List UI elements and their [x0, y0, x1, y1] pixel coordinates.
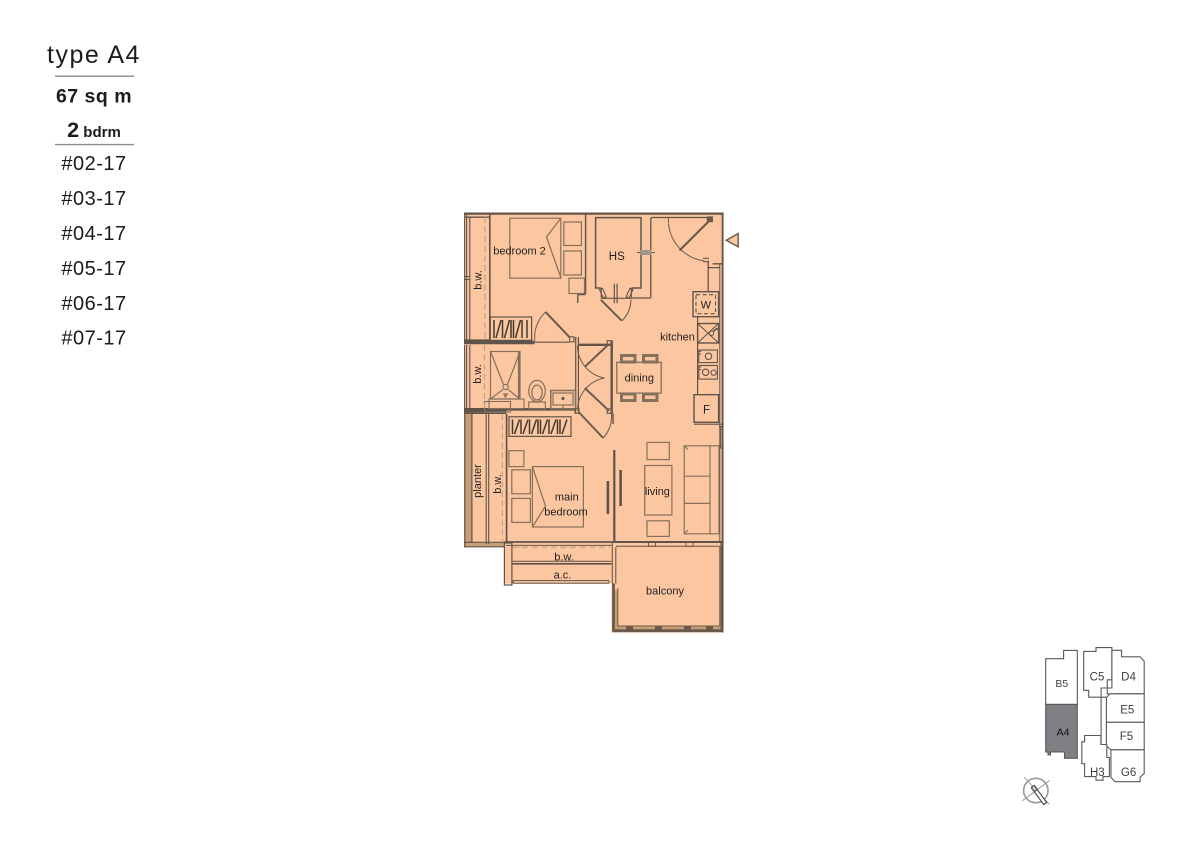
svg-text:67 sq m: 67 sq m [56, 86, 132, 108]
svg-text:H3: H3 [1090, 767, 1105, 779]
svg-text:b.w.: b.w. [554, 552, 574, 564]
svg-text:#06-17: #06-17 [61, 293, 126, 315]
svg-text:G6: G6 [1121, 767, 1136, 779]
svg-text:E5: E5 [1120, 705, 1134, 717]
svg-text:D4: D4 [1121, 672, 1136, 684]
svg-text:b.w.: b.w. [473, 270, 485, 290]
svg-text:F: F [703, 405, 710, 417]
svg-text:2 bdrm: 2 bdrm [67, 118, 121, 142]
svg-text:planter: planter [472, 464, 484, 498]
svg-text:#07-17: #07-17 [61, 328, 126, 350]
svg-text:bedroom: bedroom [544, 507, 587, 519]
svg-text:dining: dining [625, 373, 654, 385]
svg-text:#02-17: #02-17 [61, 153, 126, 175]
svg-text:main: main [555, 492, 579, 504]
svg-text:living: living [645, 486, 670, 498]
svg-text:B5: B5 [1055, 678, 1068, 690]
svg-text:F5: F5 [1120, 731, 1133, 743]
svg-text:#03-17: #03-17 [61, 188, 126, 210]
svg-text:A4: A4 [1057, 727, 1070, 739]
svg-text:HS: HS [609, 251, 625, 263]
svg-text:balcony: balcony [646, 586, 684, 598]
svg-text:bedroom 2: bedroom 2 [493, 246, 546, 258]
svg-text:b.w.: b.w. [472, 364, 484, 384]
svg-text:#05-17: #05-17 [61, 258, 126, 280]
svg-text:type A4: type A4 [47, 41, 141, 69]
svg-text:kitchen: kitchen [660, 332, 695, 344]
svg-text:a.c.: a.c. [554, 570, 572, 582]
svg-text:W: W [701, 300, 712, 312]
svg-text:#04-17: #04-17 [61, 223, 126, 245]
svg-text:b.w.: b.w. [492, 474, 504, 494]
svg-text:C5: C5 [1090, 672, 1105, 684]
